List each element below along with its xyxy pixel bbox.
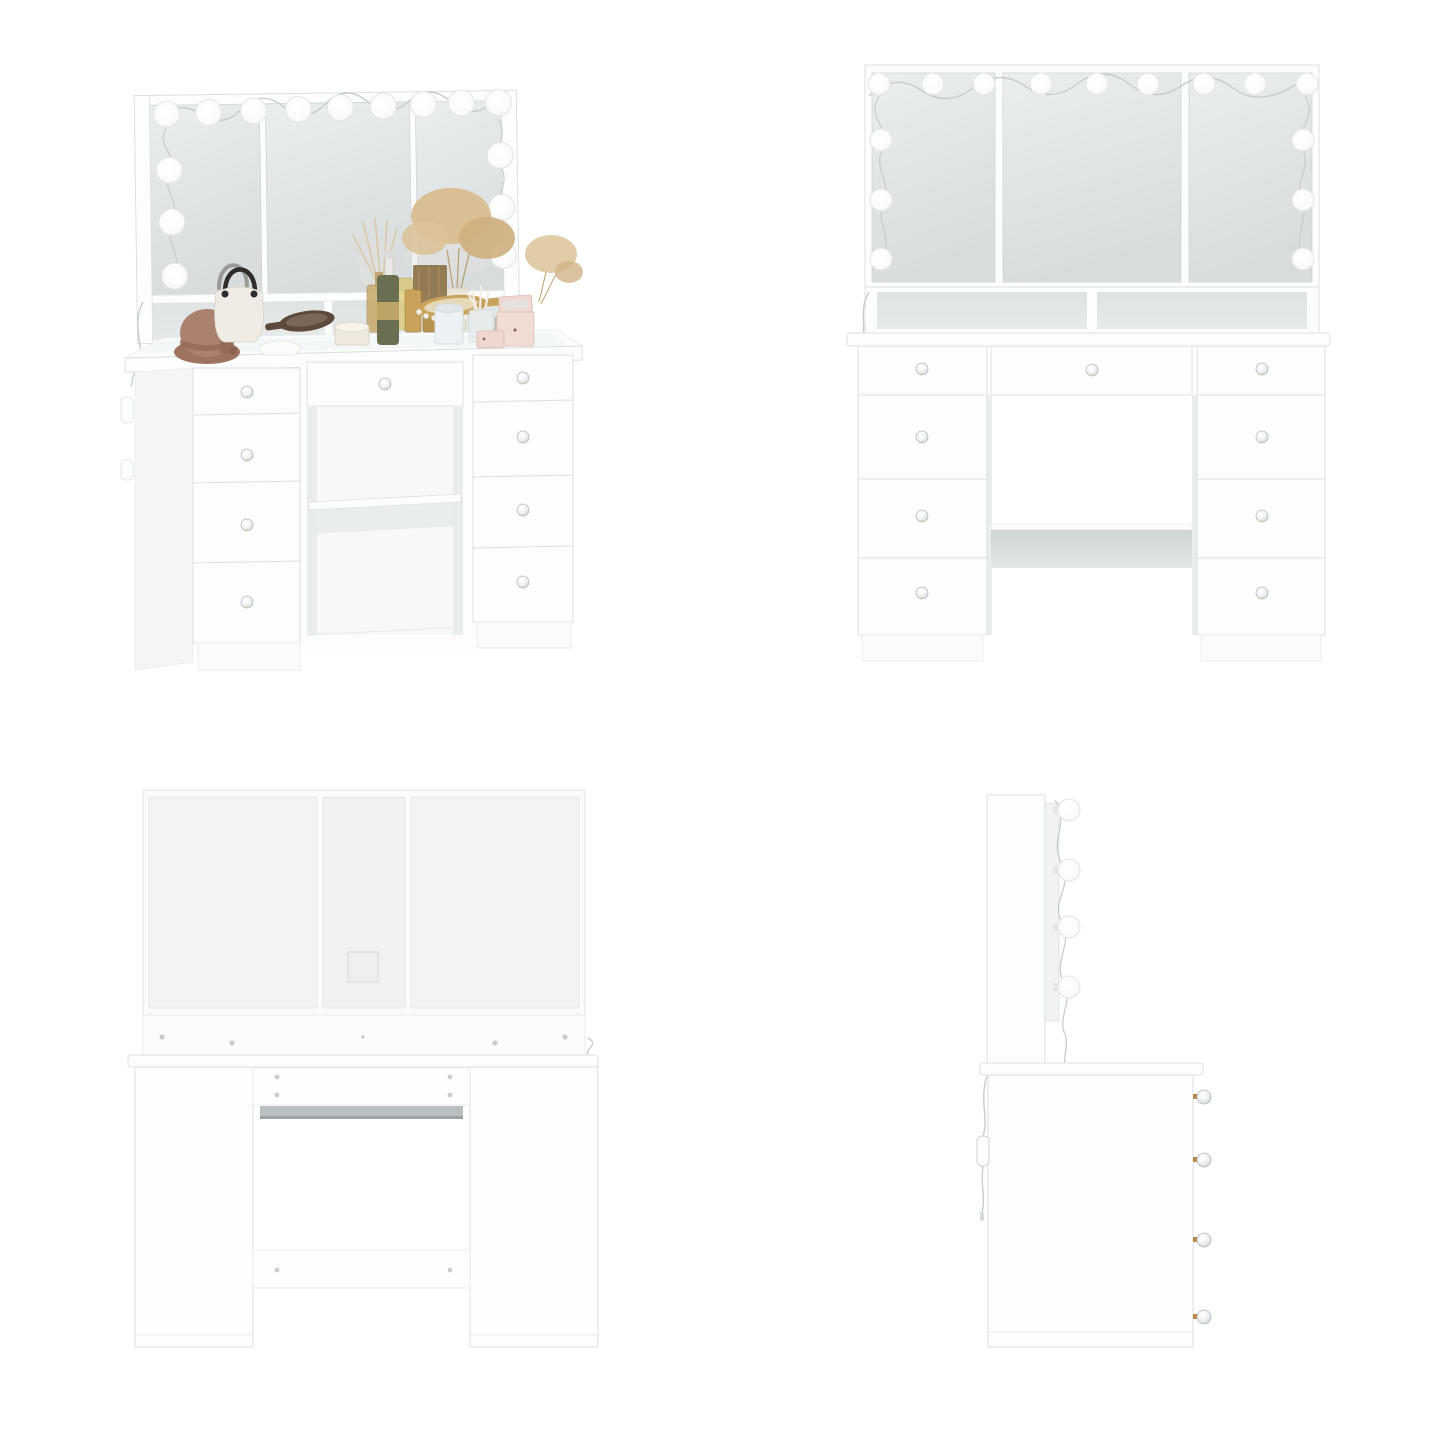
light-bulb (327, 95, 353, 121)
light-bulb (1086, 73, 1108, 95)
light-bulb (868, 73, 890, 95)
hutch-stile-left (134, 95, 152, 343)
desk-side-panel-left (135, 368, 193, 670)
pedestal-back-left (135, 1067, 253, 1347)
drawer-knob (916, 587, 928, 599)
top-stretcher-rail (253, 1068, 470, 1105)
knee-space-wall-right (1192, 395, 1197, 635)
pedestal-left (193, 368, 300, 670)
light-bulb (285, 96, 311, 122)
drawer-knob (241, 519, 253, 531)
view-side (975, 780, 1220, 1360)
hutch-cubby-right (1097, 292, 1307, 329)
drawer-knob (1256, 363, 1268, 375)
power-cord-with-switch (977, 1076, 989, 1221)
mirror-panel-center (1003, 73, 1181, 282)
desk-side-panel (988, 1075, 1193, 1347)
side-power-strip (121, 460, 133, 480)
inline-switch (977, 1136, 989, 1166)
gift-box-clasp (483, 338, 486, 341)
light-bulb (1193, 73, 1215, 95)
side-power-strip (121, 397, 133, 423)
glass-support-bar-edge (260, 1116, 463, 1119)
desk (847, 333, 1330, 661)
drawer-knob (916, 431, 928, 443)
desk (121, 330, 582, 670)
cord-tip (980, 1212, 984, 1221)
hutch-cubby-left (877, 292, 1087, 329)
mirror-panel-left (872, 73, 995, 282)
screw (275, 1268, 280, 1273)
pink-gift-box (477, 331, 504, 348)
pedestal-kick (477, 622, 571, 648)
light-bulb (1058, 916, 1080, 938)
mirror-back-panel (987, 795, 1045, 1063)
bulb-row-top (868, 73, 1318, 95)
light-bulb (159, 209, 185, 235)
drawer-knob (1256, 431, 1268, 443)
light-bulb (489, 194, 515, 220)
light-bulb (240, 98, 266, 124)
pedestal-left (858, 346, 987, 661)
light-bulb (922, 73, 944, 95)
cord-cutout (348, 952, 378, 982)
pedestal-kick (1201, 635, 1321, 661)
powder-box (335, 322, 369, 345)
light-bulb (1030, 73, 1052, 95)
light-bulb (870, 189, 892, 211)
knee-shelf (991, 530, 1192, 568)
drawer-knob (517, 504, 529, 516)
drawer-knob (1256, 510, 1268, 522)
light-bulb (156, 157, 182, 183)
desk-top-profile (980, 1063, 1203, 1075)
drawer-knob (517, 431, 529, 443)
light-bulb (1137, 73, 1159, 95)
drawer-knob (241, 449, 253, 461)
dried-flowers-small (525, 235, 583, 304)
mirror-hutch (860, 65, 1319, 345)
candle (435, 304, 463, 345)
light-bulb (870, 129, 892, 151)
knee-space-wall-left (987, 395, 992, 635)
pedestal-right (473, 355, 573, 648)
product-image-canvas (0, 0, 1445, 1445)
back-panel-left (149, 797, 317, 1008)
light-bulb (1292, 129, 1314, 151)
view-back (120, 780, 610, 1360)
light-bulb (410, 91, 436, 117)
light-bulb (448, 90, 474, 116)
pedestal-back-right (470, 1067, 598, 1347)
light-bulb (973, 73, 995, 95)
light-bulb (870, 248, 892, 270)
drawer-knob (517, 576, 529, 588)
light-bulb (1296, 73, 1318, 95)
glass-support-bar (260, 1106, 463, 1116)
desk-top (128, 1055, 598, 1067)
view-front (845, 40, 1345, 680)
light-bulb (1058, 859, 1080, 881)
light-bulb (195, 99, 221, 125)
drawer-knob (916, 510, 928, 522)
pedestal-right (1197, 346, 1325, 661)
back-panel-right (411, 797, 579, 1008)
knee-shelf-edge (991, 524, 1192, 530)
light-bulb (370, 93, 396, 119)
pedestal-kick (862, 635, 983, 661)
desk-back (128, 1055, 598, 1347)
knob-profiles (1193, 1090, 1211, 1324)
light-bulb (1292, 189, 1314, 211)
mirror-side (987, 795, 1080, 1063)
pedestal-kick (198, 643, 300, 670)
light-bulb (1244, 73, 1266, 95)
drawer-knob (241, 386, 253, 398)
light-bulb (1058, 976, 1080, 998)
view-perspective (95, 50, 595, 700)
light-bulb (162, 263, 188, 289)
mirror-panel-right (1189, 73, 1312, 282)
shelf-back-rail (253, 1250, 470, 1288)
drawer-knob (241, 596, 253, 608)
hutch-back (143, 790, 593, 1058)
light-bulb (1292, 248, 1314, 270)
desk-side (977, 1063, 1211, 1347)
drawer-knob (916, 363, 928, 375)
drawer-knob (1086, 364, 1098, 376)
light-bulb (153, 101, 179, 127)
drawer-knob (379, 378, 391, 390)
hutch-bottom-rail (143, 1015, 585, 1055)
drawer-knob (517, 372, 529, 384)
screw (448, 1268, 453, 1273)
drawer-knob (1256, 587, 1268, 599)
light-bulb (1058, 799, 1080, 821)
desk-top (847, 333, 1330, 346)
light-bulb (487, 142, 513, 168)
light-bulb (485, 89, 511, 115)
